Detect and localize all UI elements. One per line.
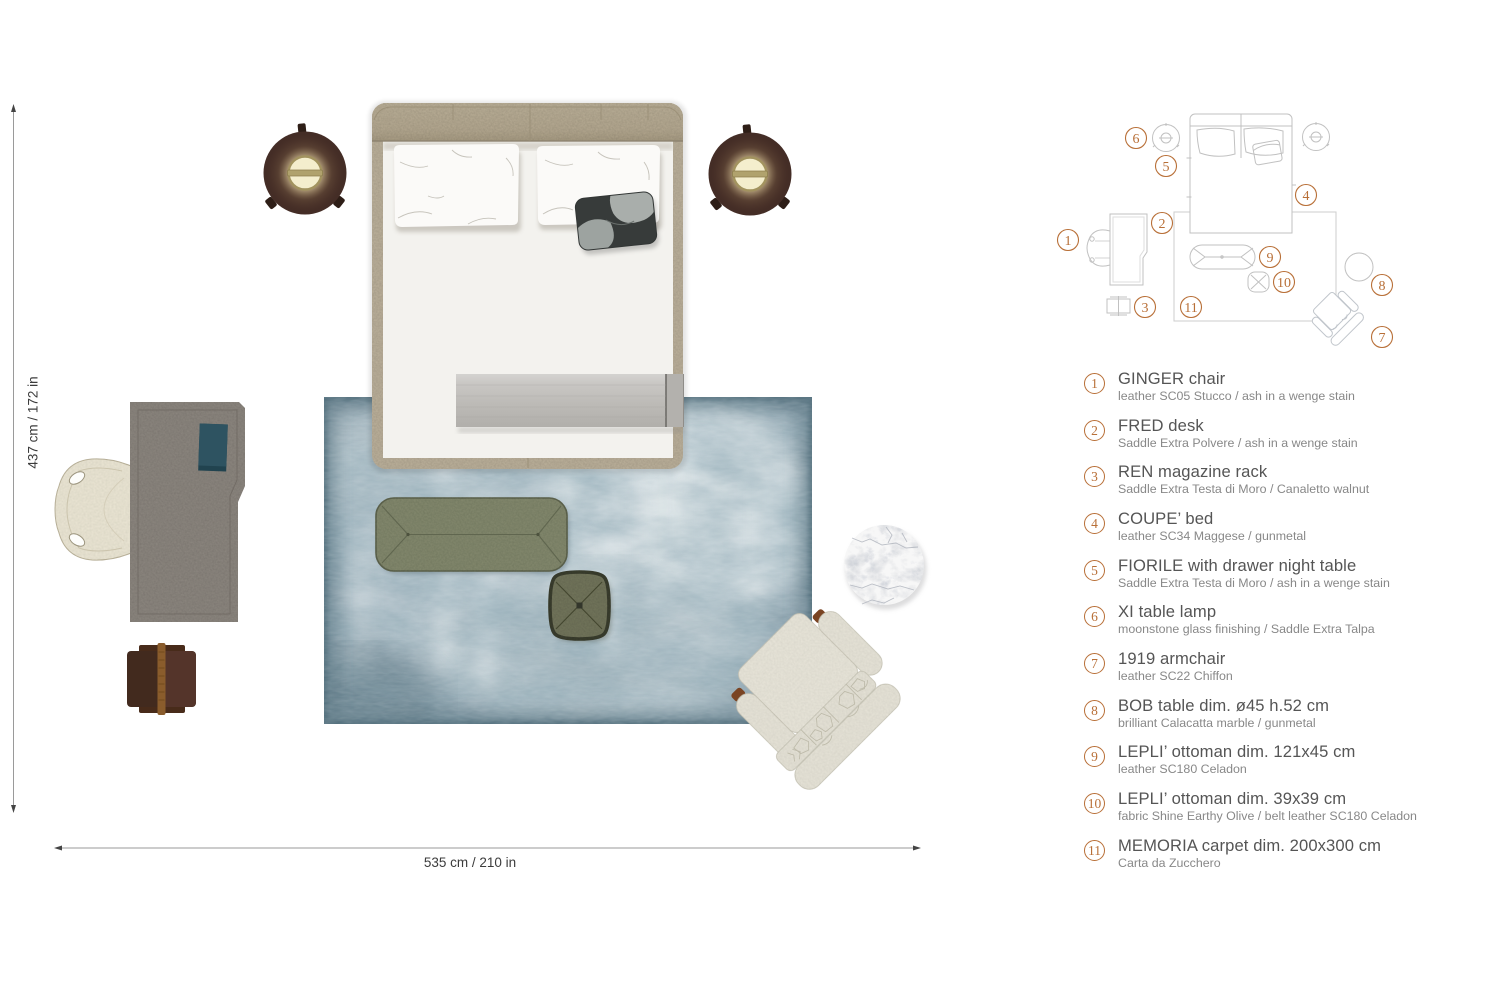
svg-text:1: 1 [1065,234,1072,249]
svg-text:4: 4 [1303,189,1310,204]
svg-text:2: 2 [1159,217,1166,232]
svg-text:11: 11 [1184,301,1197,316]
svg-text:7: 7 [1379,331,1386,346]
svg-text:5: 5 [1163,160,1170,175]
svg-text:8: 8 [1379,279,1386,294]
svg-text:10: 10 [1277,276,1291,291]
svg-text:6: 6 [1133,132,1140,147]
svg-text:9: 9 [1267,251,1274,266]
svg-text:3: 3 [1142,301,1149,316]
